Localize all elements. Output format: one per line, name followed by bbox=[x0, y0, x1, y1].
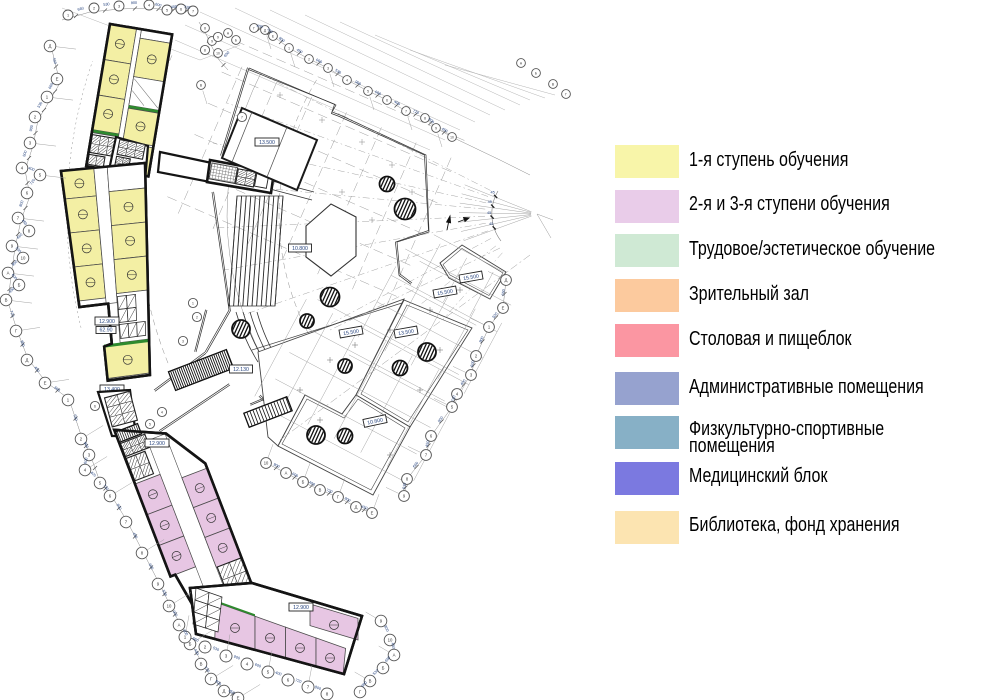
svg-text:4: 4 bbox=[346, 78, 348, 82]
svg-text:Г: Г bbox=[253, 26, 255, 30]
svg-text:Д: Д bbox=[49, 43, 52, 48]
svg-text:Б: Б bbox=[235, 38, 237, 42]
svg-text:12.900: 12.900 bbox=[293, 605, 309, 611]
svg-text:2: 2 bbox=[93, 6, 95, 10]
svg-text:6: 6 bbox=[386, 98, 388, 102]
svg-text:Б: Б bbox=[189, 641, 192, 646]
svg-text:1: 1 bbox=[288, 46, 290, 50]
svg-text:В: В bbox=[200, 661, 203, 666]
svg-text:В: В bbox=[369, 678, 372, 683]
svg-text:Д: Д bbox=[223, 688, 226, 693]
svg-text:45: 45 bbox=[488, 200, 492, 204]
svg-text:9: 9 bbox=[211, 39, 213, 43]
svg-text:Е: Е bbox=[44, 380, 47, 385]
svg-text:62.90: 62.90 bbox=[100, 327, 113, 333]
svg-text:660: 660 bbox=[501, 289, 506, 296]
svg-text:Е: Е bbox=[237, 695, 240, 700]
svg-text:Е: Е bbox=[56, 76, 59, 81]
svg-text:6: 6 bbox=[94, 404, 96, 408]
svg-text:8: 8 bbox=[424, 116, 426, 120]
svg-text:13.500: 13.500 bbox=[259, 140, 275, 146]
svg-text:10: 10 bbox=[167, 603, 172, 608]
svg-text:12.900: 12.900 bbox=[99, 319, 115, 325]
svg-text:Е: Е bbox=[371, 510, 374, 515]
svg-text:Г: Г bbox=[565, 92, 567, 96]
svg-text:3: 3 bbox=[118, 4, 120, 8]
svg-text:7: 7 bbox=[192, 9, 194, 13]
svg-text:400: 400 bbox=[171, 5, 178, 9]
svg-text:900: 900 bbox=[131, 1, 137, 5]
svg-text:2: 2 bbox=[308, 57, 310, 61]
svg-text:В: В bbox=[5, 297, 8, 302]
svg-text:12.130: 12.130 bbox=[233, 367, 249, 373]
svg-text:8: 8 bbox=[204, 26, 206, 30]
svg-text:12.900: 12.900 bbox=[149, 441, 165, 447]
svg-text:45: 45 bbox=[489, 222, 493, 226]
svg-text:8: 8 bbox=[204, 48, 206, 52]
svg-text:А: А bbox=[285, 470, 288, 475]
svg-text:45: 45 bbox=[487, 211, 491, 215]
svg-text:3: 3 bbox=[327, 66, 329, 70]
svg-text:Д: Д bbox=[355, 504, 358, 509]
svg-text:А: А bbox=[178, 622, 181, 627]
svg-text:530: 530 bbox=[103, 2, 110, 6]
svg-text:4: 4 bbox=[148, 3, 150, 7]
svg-text:2: 2 bbox=[196, 315, 198, 319]
svg-text:4: 4 bbox=[161, 410, 163, 414]
svg-text:7: 7 bbox=[405, 109, 407, 113]
svg-text:Б: Б bbox=[302, 479, 305, 484]
svg-text:Б: Б bbox=[18, 282, 21, 287]
svg-text:1: 1 bbox=[67, 13, 69, 17]
svg-text:10: 10 bbox=[450, 135, 454, 139]
svg-text:9: 9 bbox=[217, 35, 219, 39]
svg-text:10: 10 bbox=[21, 255, 26, 260]
svg-text:3: 3 bbox=[182, 339, 184, 343]
svg-text:7: 7 bbox=[241, 115, 243, 119]
svg-text:А: А bbox=[7, 270, 10, 275]
svg-text:Б: Б bbox=[535, 71, 537, 75]
svg-text:Б: Б bbox=[382, 665, 385, 670]
svg-text:В: В bbox=[319, 487, 322, 492]
svg-text:9: 9 bbox=[435, 126, 437, 130]
svg-text:5: 5 bbox=[166, 8, 168, 12]
svg-text:Е: Е bbox=[502, 305, 505, 310]
svg-text:А: А bbox=[393, 652, 396, 657]
svg-text:10.800: 10.800 bbox=[292, 246, 308, 252]
svg-text:6: 6 bbox=[180, 7, 182, 11]
svg-text:10: 10 bbox=[264, 460, 269, 465]
svg-text:Д: Д bbox=[505, 277, 508, 282]
svg-text:1: 1 bbox=[192, 301, 194, 305]
svg-text:Д: Д bbox=[26, 357, 29, 362]
svg-text:5: 5 bbox=[149, 422, 151, 426]
svg-text:10: 10 bbox=[216, 51, 220, 55]
svg-text:45: 45 bbox=[490, 190, 494, 194]
svg-text:5: 5 bbox=[367, 89, 369, 93]
